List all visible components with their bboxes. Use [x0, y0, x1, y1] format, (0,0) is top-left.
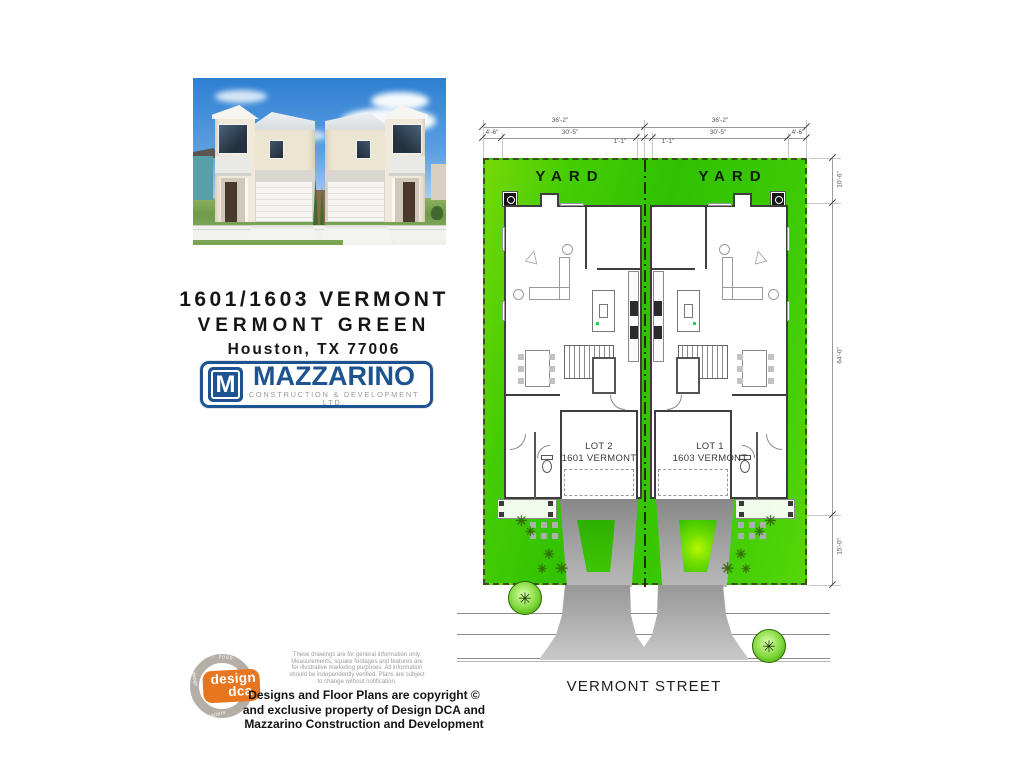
appliance	[654, 301, 662, 316]
dimension-label: 10'-6"	[837, 163, 844, 197]
kitchen-counter	[628, 271, 639, 362]
appliance	[630, 326, 638, 339]
side-table	[513, 289, 524, 300]
balcony	[389, 156, 425, 176]
side-table	[719, 244, 730, 255]
closet	[676, 357, 700, 394]
corner-window	[392, 124, 422, 154]
dimension-label: 4'-6"	[474, 129, 510, 136]
house-right	[325, 110, 425, 225]
window-marker	[787, 227, 790, 251]
window	[269, 140, 284, 159]
city-state-zip: Houston, TX 77006	[164, 341, 464, 359]
appliance	[654, 326, 662, 339]
property-line	[644, 160, 646, 587]
lot-address: 1603 VERMONT	[660, 453, 760, 465]
interior-wall	[585, 207, 587, 269]
window-marker	[708, 203, 732, 206]
island-sink	[684, 304, 693, 318]
garage-band	[253, 170, 315, 181]
appliance	[630, 301, 638, 316]
lot-number: LOT 1	[660, 441, 760, 453]
yard-label-right: YARD	[673, 168, 793, 185]
dimension-label: 1'-1"	[650, 138, 686, 145]
dimension-label: 1'-1"	[602, 138, 638, 145]
dimension-line	[832, 158, 833, 585]
mazzarino-logo: M MAZZARINO CONSTRUCTION & DEVELOPMENT L…	[200, 361, 433, 408]
side-table	[562, 244, 573, 255]
sectional-sofa	[559, 257, 570, 300]
shrub-icon	[721, 559, 734, 578]
copyright-line: Mazzarino Construction and Development	[238, 717, 490, 732]
driveway-apron	[636, 585, 748, 660]
plan-marker-dot	[596, 322, 599, 325]
window	[356, 140, 371, 159]
title-block: 1601/1603 VERMONT VERMONT GREEN Houston,…	[164, 288, 464, 359]
closet	[592, 357, 616, 394]
disclaimer-line: should be independently verified. Plans …	[272, 672, 442, 679]
shrub-icon	[525, 525, 536, 540]
dining-table	[525, 350, 550, 387]
lot-number: LOT 2	[549, 441, 649, 453]
balcony	[215, 156, 251, 176]
house-left	[215, 110, 315, 225]
corner-window	[218, 124, 248, 154]
street-tree-icon	[752, 629, 786, 663]
shrub-icon	[735, 547, 747, 563]
copyright-line: Designs and Floor Plans are copyright ©	[238, 688, 490, 703]
disclaimer-line: These drawings are for general informati…	[272, 652, 442, 659]
side-table	[768, 289, 779, 300]
shrub-icon	[754, 525, 765, 540]
cloud	[215, 90, 267, 103]
lot2-label: LOT 2 1601 VERMONT	[549, 441, 649, 464]
interior-wall	[506, 394, 560, 396]
mazzarino-wordmark: MAZZARINO CONSTRUCTION & DEVELOPMENT LTD…	[243, 363, 425, 406]
driveway-apron	[540, 585, 652, 660]
dimension-label: 4'-6"	[780, 129, 816, 136]
window-marker	[787, 301, 790, 321]
dimension-line	[483, 127, 807, 128]
disclaimer-line: to change without notification.	[272, 679, 442, 686]
garage-band	[325, 170, 387, 181]
island-sink	[599, 304, 608, 318]
front-door	[403, 182, 415, 222]
window-marker	[502, 301, 505, 321]
mazzarino-monogram-icon: M	[208, 367, 243, 402]
parkway-grass	[193, 240, 343, 245]
window-marker	[502, 227, 505, 251]
street-tree-icon	[508, 581, 542, 615]
site-plan-lawn: YARD YARD	[483, 158, 807, 585]
shrub-icon	[537, 562, 547, 576]
extension-line	[809, 158, 841, 159]
dimension-label: 30'-5"	[545, 129, 595, 136]
copyright-line: and exclusive property of Design DCA and	[238, 703, 490, 718]
window-marker	[560, 203, 584, 206]
builder-tagline: CONSTRUCTION & DEVELOPMENT LTD.	[243, 391, 425, 406]
dimension-label: 30'-5"	[693, 129, 743, 136]
shrub-icon	[764, 512, 777, 530]
garage-door-dashed	[658, 469, 728, 496]
interior-wall	[705, 207, 707, 269]
curb-line	[193, 229, 446, 230]
sidewalk-line	[457, 613, 830, 614]
interior-wall	[652, 268, 695, 270]
porch-post	[392, 178, 395, 222]
copyright-notice: Designs and Floor Plans are copyright © …	[238, 688, 490, 732]
dimension-label: 15'-0"	[837, 530, 844, 564]
dimension-line	[483, 138, 807, 139]
monogram-letter: M	[216, 371, 236, 399]
shrub	[431, 206, 443, 220]
dimension-label: 36'-2"	[535, 117, 585, 124]
garage-door	[327, 181, 385, 222]
disclaimer-line: Measurements, square footages and featur…	[272, 659, 442, 666]
disclaimer-line: for illustrative marketing purposes. All…	[272, 665, 442, 672]
garage-door	[255, 181, 313, 222]
legal-disclaimer: These drawings are for general informati…	[272, 652, 442, 686]
duplex-rendering-photo	[193, 78, 446, 245]
sectional-sofa	[722, 257, 733, 300]
interior-wall	[597, 268, 640, 270]
kitchen-counter	[653, 271, 664, 362]
dimension-label: 36'-2"	[695, 117, 745, 124]
street-name-label: VERMONT STREET	[544, 678, 744, 695]
address-title: 1601/1603 VERMONT	[164, 288, 464, 312]
shrub-icon	[543, 547, 555, 563]
project-name: VERMONT GREEN	[164, 315, 464, 337]
extension-line	[809, 585, 841, 586]
neighbor-house	[193, 156, 213, 200]
interior-wall	[534, 432, 536, 499]
plan-marker-dot	[693, 322, 696, 325]
lot-address: 1601 VERMONT	[549, 453, 649, 465]
neighbor-house	[431, 164, 446, 200]
front-door	[225, 182, 237, 222]
fireplace-bump	[540, 193, 559, 207]
lot1-label: LOT 1 1603 VERMONT	[660, 441, 760, 464]
brochure-page: 1601/1603 VERMONT VERMONT GREEN Houston,…	[0, 0, 1024, 768]
yard-label-left: YARD	[510, 168, 630, 185]
shrub-icon	[555, 559, 568, 578]
porch-post	[245, 178, 248, 222]
shrub-icon	[741, 562, 751, 576]
garage-door-dashed	[564, 469, 634, 496]
fireplace-bump	[733, 193, 752, 207]
builder-name: MAZZARINO	[243, 363, 425, 390]
dimension-label: 64'-0"	[837, 339, 844, 373]
interior-wall	[732, 394, 786, 396]
stepping-stones	[738, 522, 744, 528]
dining-table	[742, 350, 767, 387]
